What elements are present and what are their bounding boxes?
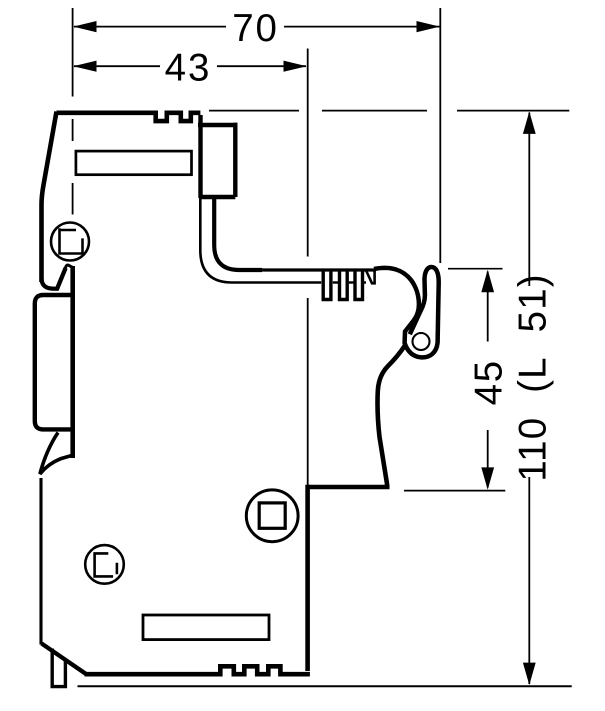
svg-text:110 (L 51): 110 (L 51) bbox=[512, 273, 555, 481]
svg-text:45: 45 bbox=[468, 359, 511, 405]
svg-text:43: 43 bbox=[165, 46, 212, 89]
svg-text:70: 70 bbox=[232, 7, 278, 50]
